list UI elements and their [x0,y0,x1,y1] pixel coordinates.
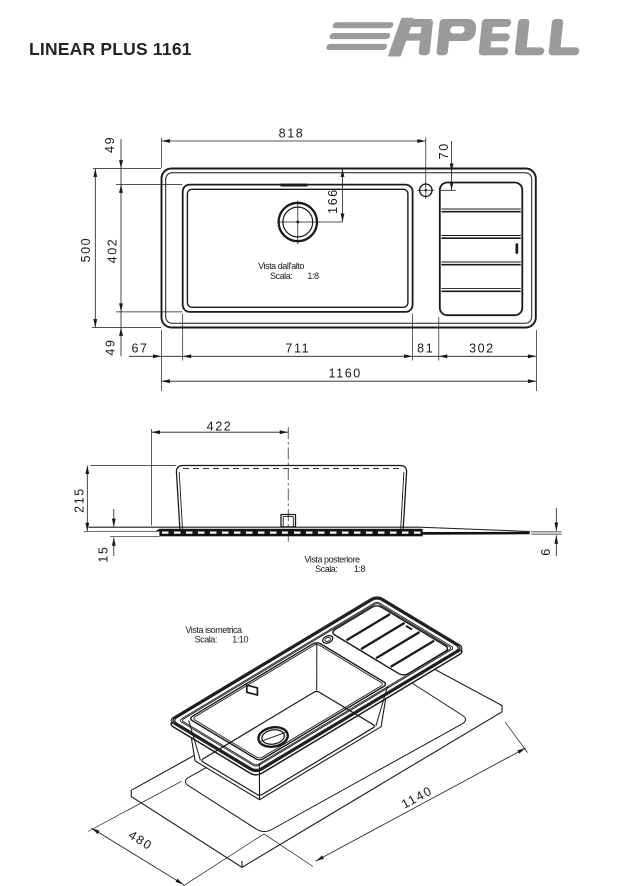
svg-text:215: 215 [73,487,87,513]
svg-text:1160: 1160 [329,366,362,380]
svg-text:49: 49 [104,338,118,355]
svg-text:1:8: 1:8 [307,271,319,281]
svg-text:6: 6 [539,547,553,556]
svg-text:81: 81 [417,342,434,356]
svg-text:LINEAR PLUS 1161: LINEAR PLUS 1161 [29,39,192,59]
svg-text:422: 422 [207,420,233,434]
svg-text:67: 67 [131,342,148,356]
svg-text:15: 15 [96,545,110,562]
svg-text:Vista dall'alto: Vista dall'alto [258,261,304,271]
svg-text:711: 711 [285,342,310,356]
svg-text:Scala:: Scala: [195,634,217,644]
svg-text:70: 70 [437,142,451,159]
svg-text:302: 302 [469,342,495,356]
svg-text:Scala:: Scala: [270,271,292,281]
svg-text:818: 818 [279,126,305,140]
svg-text:1:8: 1:8 [354,564,366,574]
svg-text:Vista isometrica: Vista isometrica [185,625,242,635]
svg-text:500: 500 [79,237,93,263]
svg-text:1:10: 1:10 [232,634,248,644]
svg-text:49: 49 [103,136,117,153]
svg-text:Scala:: Scala: [315,564,337,574]
svg-text:402: 402 [106,238,120,264]
svg-text:166: 166 [326,188,340,214]
